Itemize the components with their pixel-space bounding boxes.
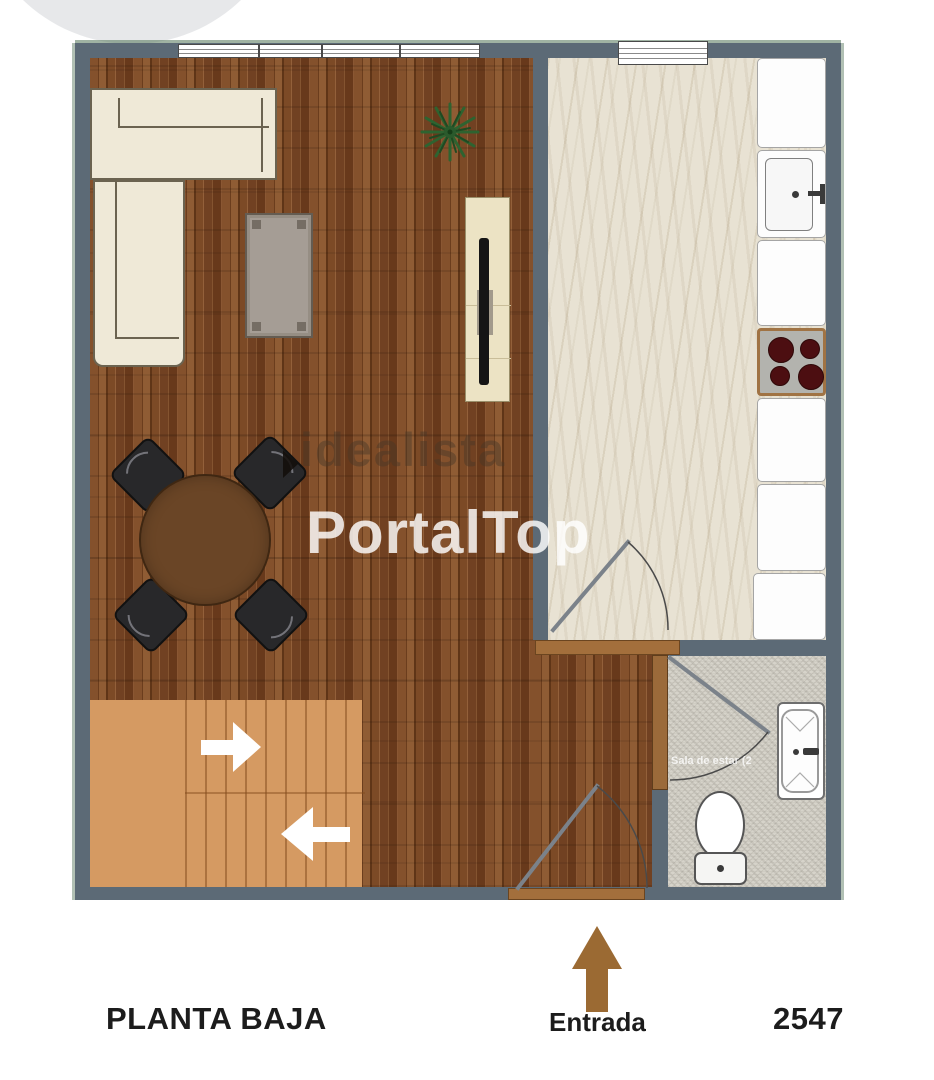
wall-left	[75, 43, 90, 900]
corner-blob-decoration	[0, 0, 289, 44]
tub-faucet-icon	[793, 749, 799, 755]
tv-screen	[479, 238, 489, 385]
entrance-label: Entrada	[549, 1007, 646, 1038]
kitchen-cabinet	[757, 398, 826, 482]
kitchen-window	[618, 41, 708, 65]
wall-bottom	[75, 887, 841, 900]
toilet-flush-button	[717, 865, 724, 872]
bathroom-door-leaf-bar	[652, 655, 668, 790]
living-room-window	[178, 44, 480, 58]
stairs-down-arrow-icon	[281, 807, 350, 862]
staircase	[90, 700, 362, 887]
kitchen-door-threshold	[535, 640, 680, 655]
plant-icon	[418, 100, 482, 164]
floorplan-page: { "plan": { "floor_label": "PLANTA BAJA"…	[0, 0, 934, 1080]
room-label: Sala de estar (2	[671, 755, 752, 767]
stair-landing-line	[185, 792, 365, 794]
kitchen-cabinet	[757, 240, 826, 326]
watermark-portal: PortalTop	[306, 498, 591, 567]
sink-faucet-icon	[820, 184, 825, 204]
plan-number: 2547	[773, 1001, 844, 1037]
sink-drain	[792, 191, 799, 198]
wall-right	[826, 43, 841, 900]
kitchen-cabinet	[757, 58, 826, 148]
window-divider	[321, 45, 323, 57]
wall-bathroom-left	[652, 788, 668, 887]
coffee-table-rug	[245, 213, 313, 338]
watermark-brand: idealista	[300, 422, 506, 477]
stairs-up-arrow-icon	[201, 722, 261, 773]
kitchen-sink-basin	[765, 158, 813, 231]
dining-table	[139, 474, 271, 606]
stove-cooktop	[757, 328, 826, 396]
sofa-chaise-section	[93, 180, 185, 367]
kitchen-cabinet	[757, 484, 826, 571]
entrance-door-threshold	[508, 888, 645, 900]
sofa-back-section	[90, 88, 277, 180]
entrance-arrow-icon	[572, 926, 622, 1014]
floor-title: PLANTA BAJA	[106, 1001, 327, 1037]
kitchen-cabinet	[753, 573, 826, 640]
brand-logo-wedge-icon	[283, 450, 298, 478]
toilet	[695, 791, 745, 859]
tub-faucet-icon	[803, 748, 819, 755]
window-divider	[258, 45, 260, 57]
hall-floor	[533, 640, 652, 887]
window-divider	[399, 45, 401, 57]
